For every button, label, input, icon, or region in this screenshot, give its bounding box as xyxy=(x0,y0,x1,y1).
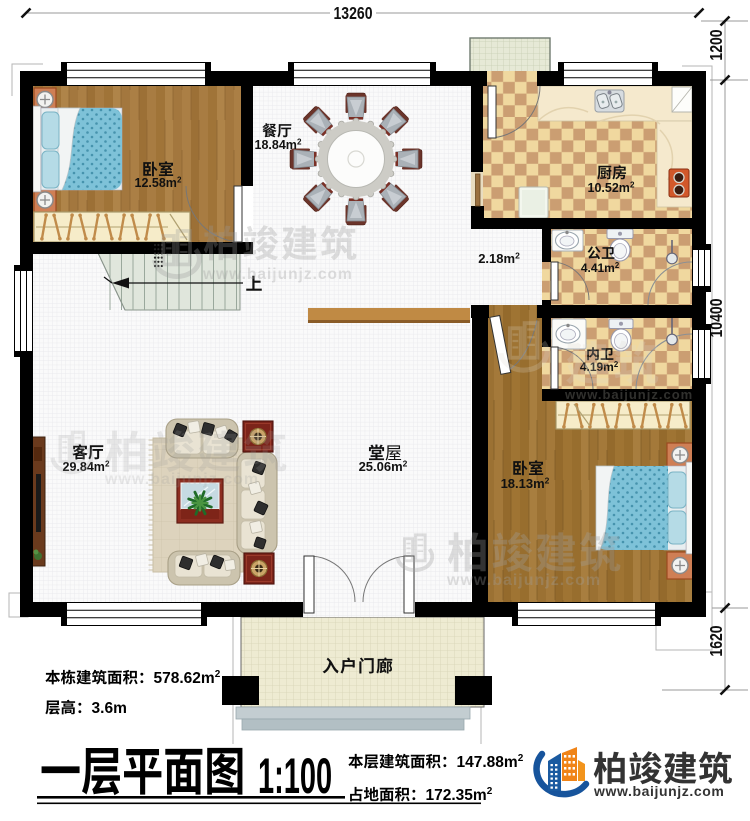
svg-text:www.baijunjz.com: www.baijunjz.com xyxy=(446,572,601,589)
svg-text:www.baijunjz.com: www.baijunjz.com xyxy=(593,783,724,799)
svg-text:一层平面图: 一层平面图 xyxy=(40,731,245,805)
svg-text:4.41m2: 4.41m2 xyxy=(581,261,620,275)
svg-text:18.13m2: 18.13m2 xyxy=(501,476,550,492)
svg-text:10.52m2: 10.52m2 xyxy=(588,181,635,195)
svg-text:13260: 13260 xyxy=(333,3,372,23)
svg-text:1:100: 1:100 xyxy=(258,748,332,804)
svg-text:占地面积：172.35m2: 占地面积：172.35m2 xyxy=(348,783,493,805)
svg-text:18.84m2: 18.84m2 xyxy=(255,138,302,152)
svg-text:建筑: 建筑 xyxy=(565,328,661,394)
svg-text:入户门廊: 入户门廊 xyxy=(322,652,394,677)
svg-text:2.18m2: 2.18m2 xyxy=(478,251,520,267)
svg-text:柏竣建筑: 柏竣建筑 xyxy=(203,214,359,268)
svg-text:公卫: 公卫 xyxy=(587,243,615,263)
svg-text:25.06m2: 25.06m2 xyxy=(359,459,408,475)
svg-text:厨房: 厨房 xyxy=(597,162,627,183)
svg-text:本层建筑面积：147.88m2: 本层建筑面积：147.88m2 xyxy=(348,750,524,772)
svg-text:12.58m2: 12.58m2 xyxy=(135,176,182,190)
svg-text:层高：3.6m: 层高：3.6m xyxy=(45,696,127,718)
svg-text:本栋建筑面积：578.62m2: 本栋建筑面积：578.62m2 xyxy=(45,666,221,688)
svg-text:www.baijunjz.com: www.baijunjz.com xyxy=(104,471,259,488)
svg-text:www.baijunjz.com: www.baijunjz.com xyxy=(564,387,693,402)
svg-text:1200: 1200 xyxy=(706,29,726,60)
svg-text:1620: 1620 xyxy=(706,625,726,656)
svg-text:www.baijunjz.com: www.baijunjz.com xyxy=(202,266,353,283)
